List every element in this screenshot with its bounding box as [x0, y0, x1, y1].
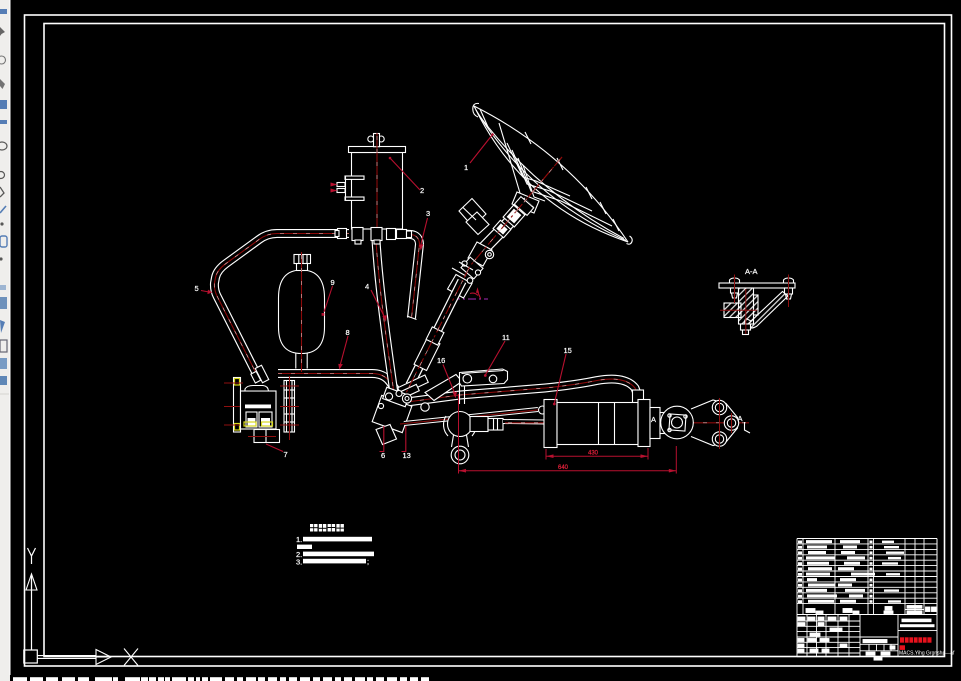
svg-text:9: 9 [331, 278, 335, 287]
svg-text:MACS.Yihg Grgnshp—af: MACS.Yihg Grgnshp—af [899, 651, 955, 657]
svg-text:6: 6 [381, 451, 385, 460]
svg-text:430: 430 [588, 451, 599, 457]
svg-text:4: 4 [365, 282, 369, 291]
svg-text:13: 13 [403, 451, 411, 460]
svg-text:2: 2 [420, 186, 424, 195]
svg-text:;: ; [367, 557, 369, 566]
svg-text:8: 8 [346, 328, 350, 337]
svg-text:11: 11 [502, 333, 510, 342]
svg-text:3: 3 [426, 209, 430, 218]
svg-text:1: 1 [464, 163, 468, 172]
svg-text:15: 15 [564, 346, 572, 355]
svg-text:5: 5 [195, 284, 199, 293]
svg-text:3.: 3. [296, 558, 302, 567]
svg-text:A: A [738, 414, 743, 423]
svg-text:1.: 1. [296, 535, 302, 544]
svg-text:A-A: A-A [745, 267, 758, 276]
svg-text:16: 16 [437, 356, 445, 365]
svg-text:7: 7 [284, 450, 288, 459]
svg-text:A: A [651, 415, 656, 424]
svg-text:640: 640 [558, 465, 569, 471]
